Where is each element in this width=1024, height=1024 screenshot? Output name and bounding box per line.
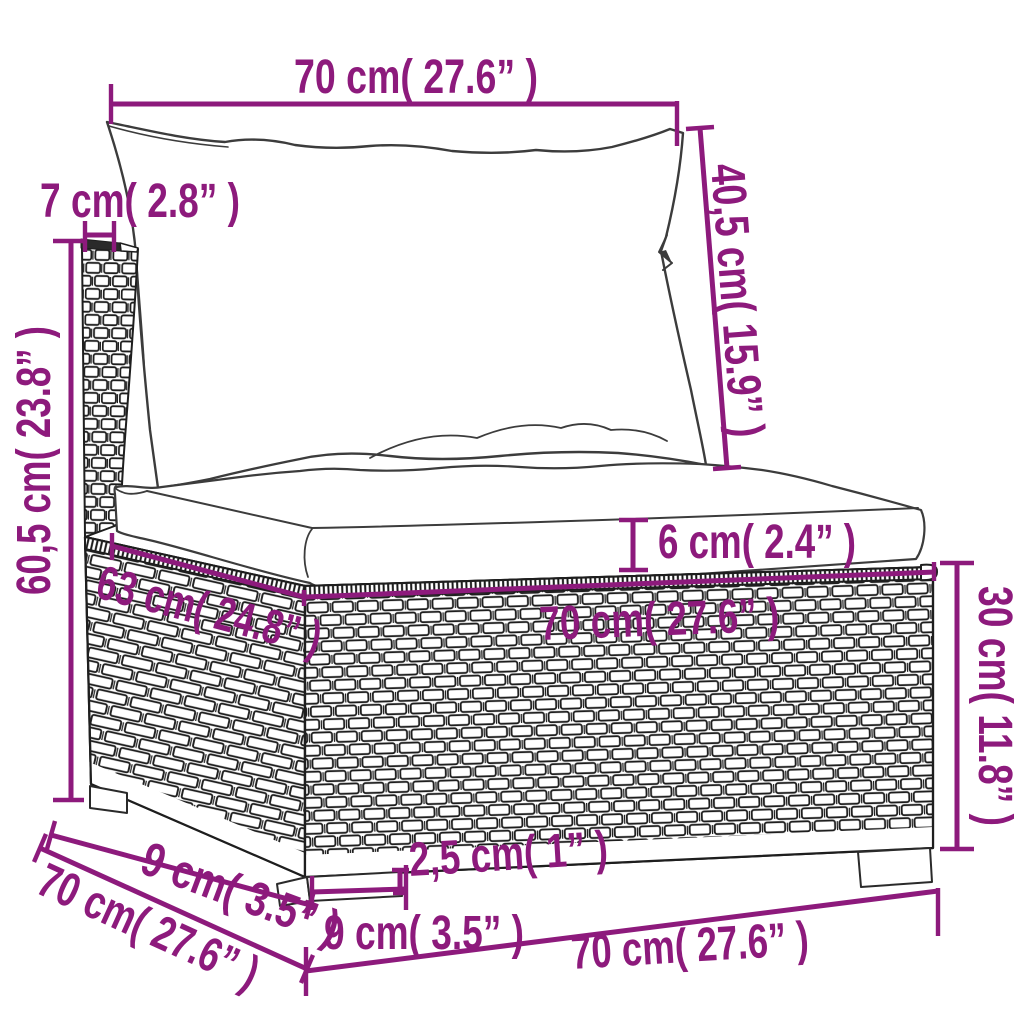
- svg-text:70 cm( 27.6” ): 70 cm( 27.6” ): [538, 589, 780, 651]
- svg-text:6 cm( 2.4” ): 6 cm( 2.4” ): [658, 516, 856, 569]
- svg-text:70 cm( 27.6” ): 70 cm( 27.6” ): [294, 51, 538, 104]
- svg-text:7 cm( 2.8” ): 7 cm( 2.8” ): [40, 175, 240, 228]
- svg-text:60,5 cm( 23.8” ): 60,5 cm( 23.8” ): [8, 326, 61, 595]
- svg-text:30 cm( 11.8” ): 30 cm( 11.8” ): [968, 586, 1021, 826]
- svg-text:9 cm( 3.5” ): 9 cm( 3.5” ): [324, 907, 524, 960]
